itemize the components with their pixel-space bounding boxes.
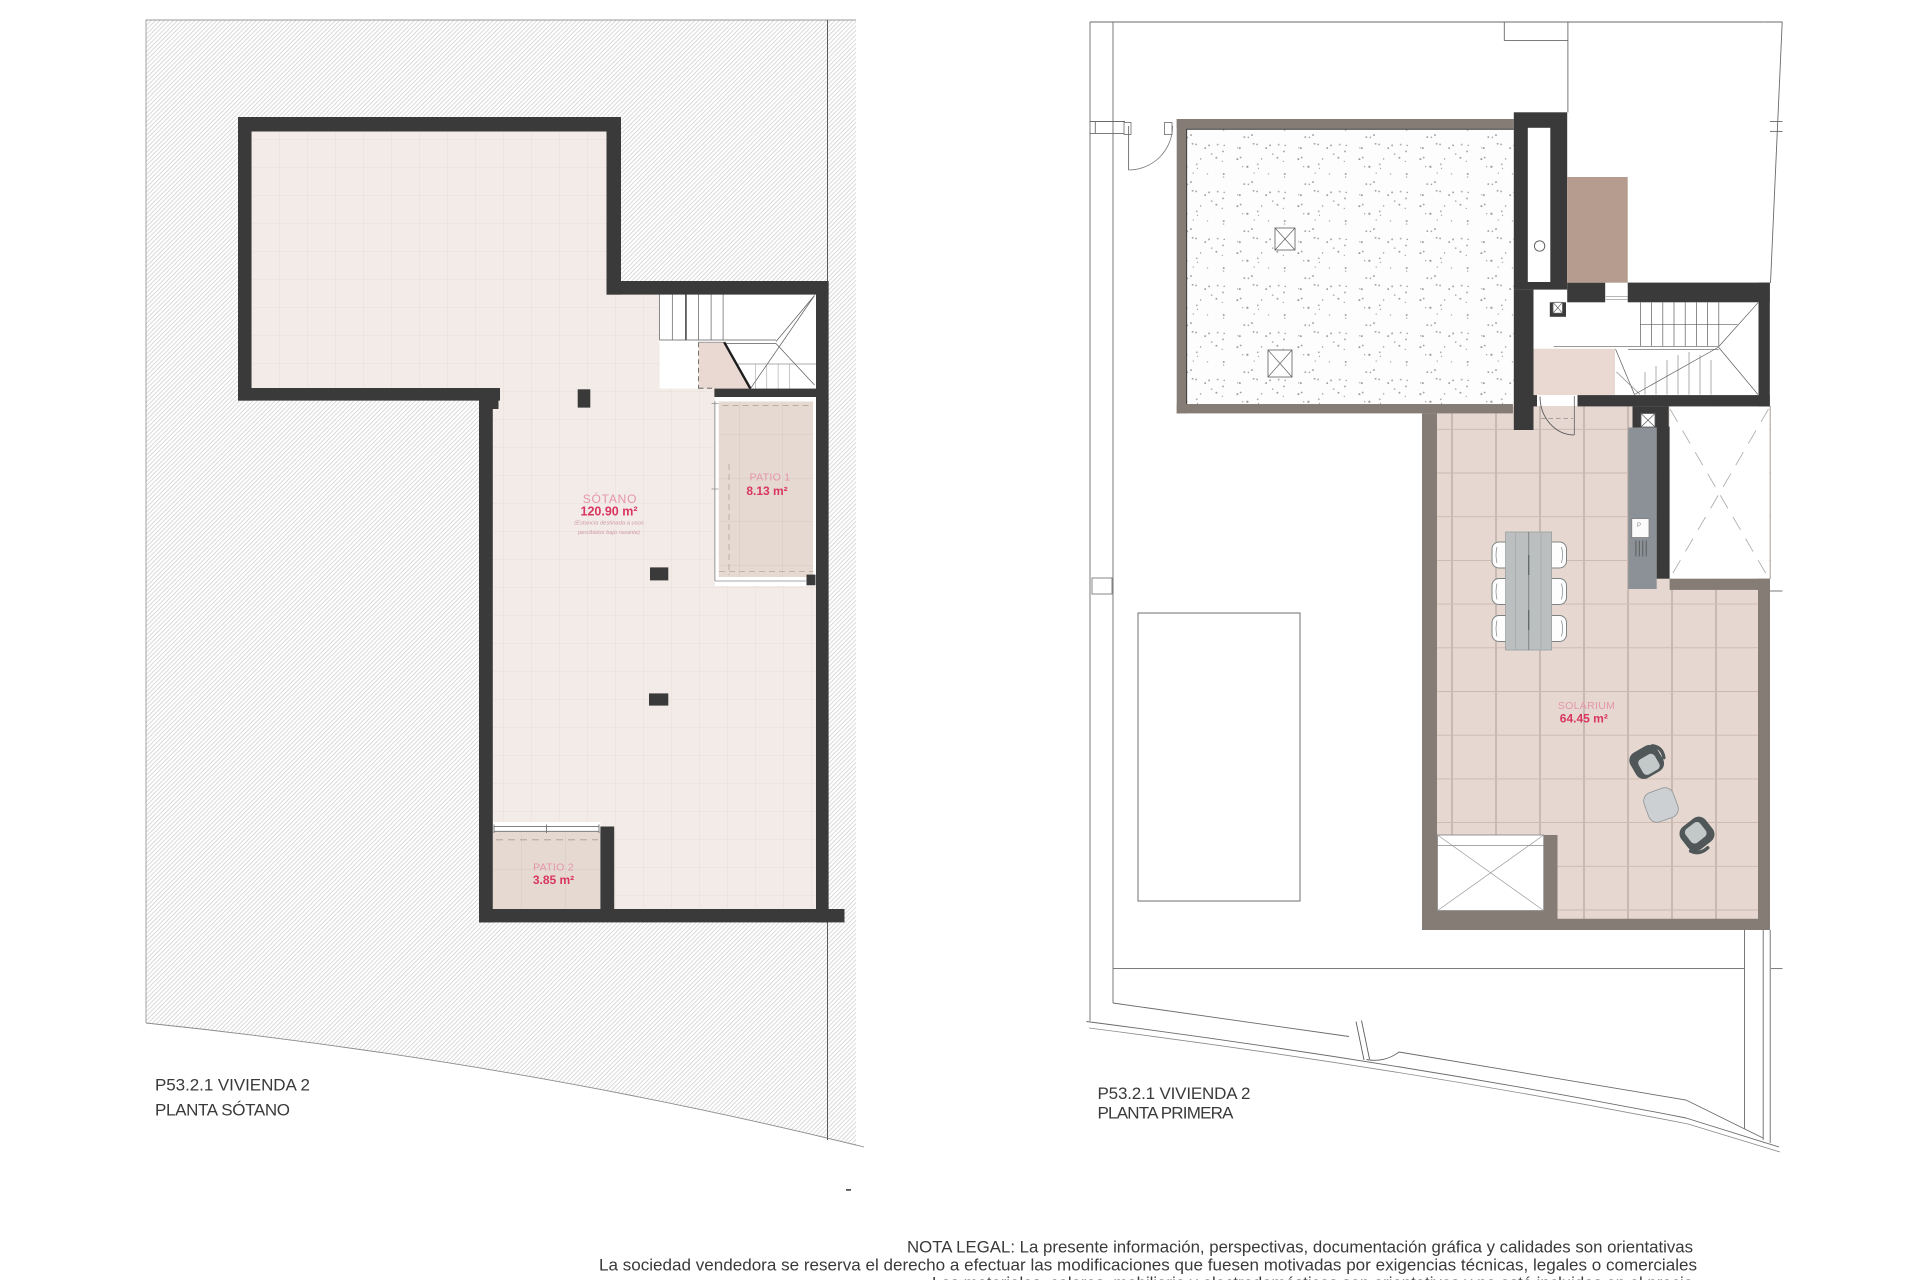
svg-text:PLANTA PRIMERA: PLANTA PRIMERA	[1098, 1104, 1235, 1123]
svg-text:120.90 m²: 120.90 m²	[581, 505, 638, 519]
svg-text:P53.2.1 VIVIENDA 2: P53.2.1 VIVIENDA 2	[1098, 1084, 1251, 1103]
svg-text:SOLARIUM: SOLARIUM	[1558, 700, 1615, 712]
svg-text:NOTA LEGAL: La presente inform: NOTA LEGAL: La presente información, per…	[907, 1238, 1693, 1257]
svg-text:P: P	[1637, 523, 1641, 529]
svg-text:64.45 m²: 64.45 m²	[1560, 712, 1608, 726]
svg-text:3.85 m²: 3.85 m²	[533, 873, 574, 887]
svg-text:PATIO 1: PATIO 1	[750, 472, 791, 484]
svg-text:La sociedad vendedora se reser: La sociedad vendedora se reserva el dere…	[599, 1256, 1697, 1275]
svg-text:PLANTA SÓTANO: PLANTA SÓTANO	[155, 1101, 290, 1120]
svg-text:8.13 m²: 8.13 m²	[746, 484, 787, 498]
svg-text:(Estancia destinada a usos: (Estancia destinada a usos	[574, 521, 644, 527]
svg-text:Los materiales, colores, mobil: Los materiales, colores, mobiliario y el…	[932, 1274, 1693, 1280]
svg-text:percibidos bajo rasante): percibidos bajo rasante)	[577, 530, 640, 536]
svg-text:P53.2.1 VIVIENDA 2: P53.2.1 VIVIENDA 2	[155, 1076, 310, 1095]
svg-text:PATIO 2: PATIO 2	[533, 862, 574, 874]
